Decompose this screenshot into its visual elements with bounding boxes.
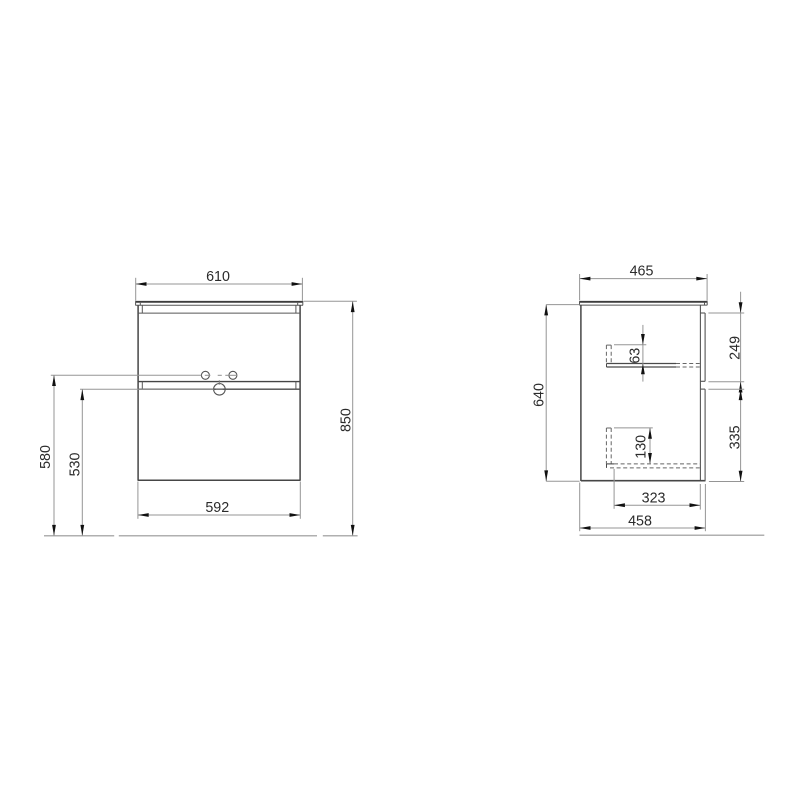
svg-text:63: 63 xyxy=(628,348,644,364)
svg-text:323: 323 xyxy=(642,491,666,507)
svg-text:580: 580 xyxy=(38,445,54,469)
svg-text:850: 850 xyxy=(339,408,355,432)
svg-text:592: 592 xyxy=(205,500,229,516)
svg-text:640: 640 xyxy=(532,383,548,407)
svg-text:335: 335 xyxy=(728,425,744,449)
svg-text:249: 249 xyxy=(728,336,744,360)
svg-text:130: 130 xyxy=(633,435,649,459)
svg-text:610: 610 xyxy=(206,269,230,285)
svg-text:465: 465 xyxy=(630,263,654,279)
svg-text:458: 458 xyxy=(628,514,652,530)
svg-text:530: 530 xyxy=(68,453,84,477)
